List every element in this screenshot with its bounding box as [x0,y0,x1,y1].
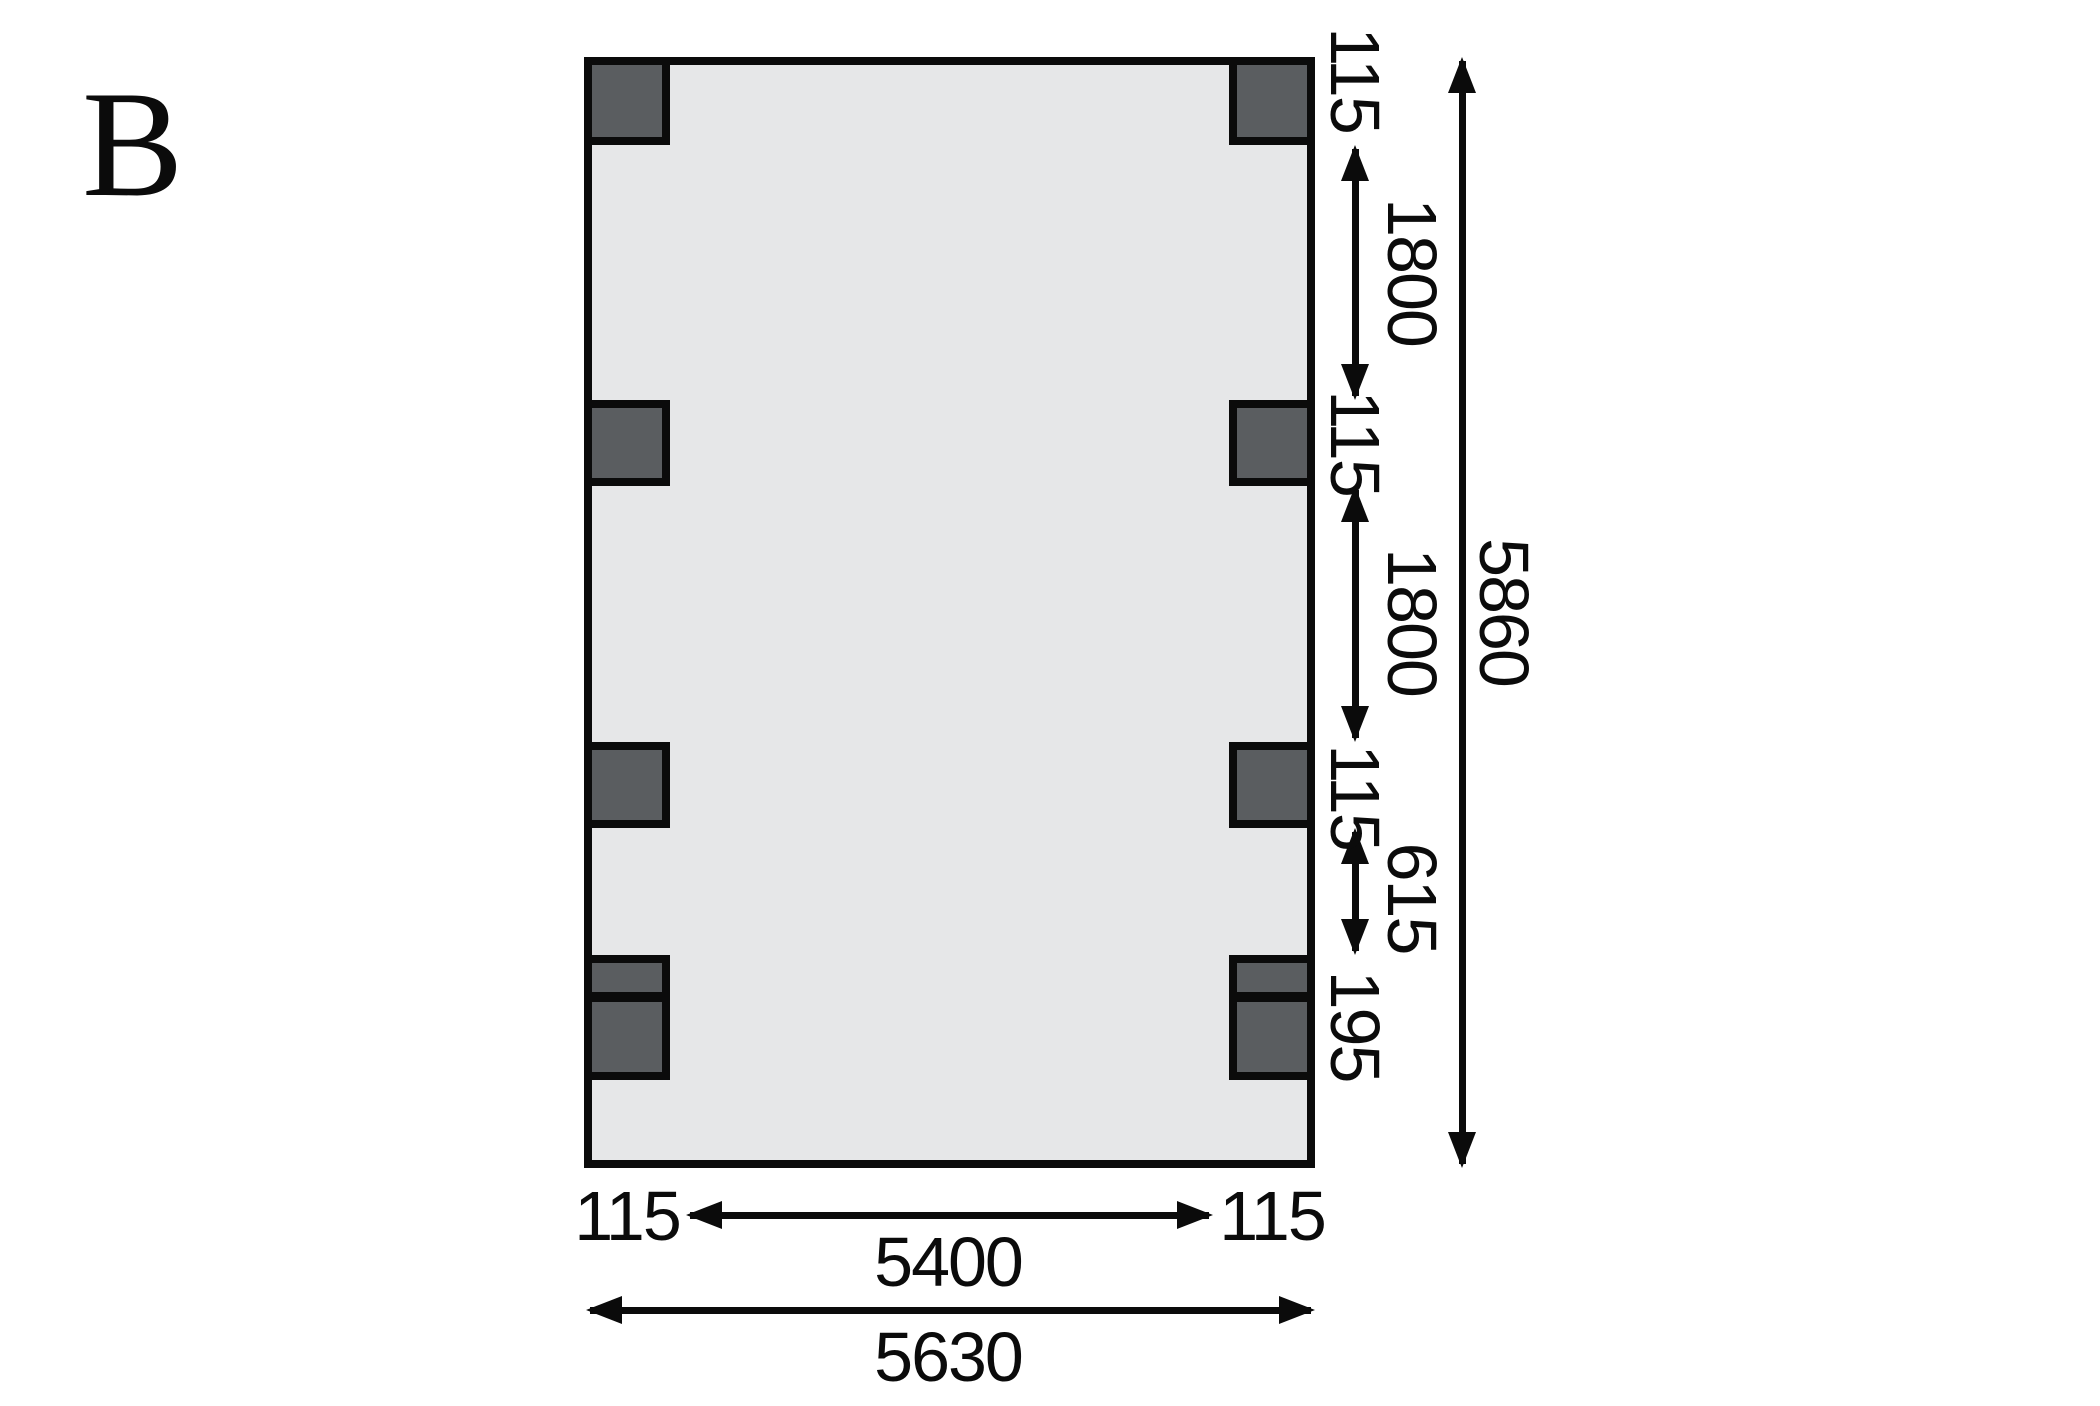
dim-label-post-width-right: 115 [1219,1181,1325,1251]
dim-label-overall-depth: 5860 [1469,538,1539,686]
post-anchor-right [1229,955,1315,1080]
figure-label: B [82,68,183,220]
arrowhead-right-icon [1279,1296,1315,1324]
post-middle-right [1229,400,1315,486]
dim-arrow-spacing-2 [1341,486,1369,742]
arrowhead-down-icon [1341,919,1369,955]
arrowhead-left-icon [686,1201,722,1229]
dim-label-overall-width: 5630 [874,1322,1022,1392]
post-lower-right [1229,742,1315,828]
arrowhead-right-icon [1177,1201,1213,1229]
post-anchor-left [584,955,670,1080]
post-lower-left [584,742,670,828]
arrowhead-down-icon [1341,706,1369,742]
dim-line [1352,149,1359,396]
post-middle-left [584,400,670,486]
dim-label-inner-span: 5400 [874,1227,1022,1297]
dim-label-post-width-lower: 115 [1320,744,1390,850]
post-top-left [584,57,670,145]
plan-outline [584,57,1315,1168]
dim-line [1352,490,1359,738]
technical-drawing: B [0,0,2100,1406]
dim-label-post-width-middle: 115 [1320,390,1390,496]
dim-line [690,1212,1209,1219]
post-anchor-left-band [590,992,664,1002]
dim-label-spacing-1: 1800 [1377,198,1447,346]
dim-label-spacing-2: 1800 [1377,548,1447,696]
dim-label-post-width-top: 115 [1320,27,1390,133]
arrowhead-down-icon [1448,1132,1476,1168]
arrowhead-up-icon [1448,57,1476,93]
post-top-right [1229,57,1315,145]
dim-arrow-spacing-1 [1341,145,1369,400]
dim-label-spacing-3: 615 [1377,843,1447,954]
dim-label-post-width-left: 115 [574,1181,680,1251]
dim-label-anchor-length: 195 [1320,971,1390,1082]
arrowhead-left-icon [586,1296,622,1324]
arrowhead-up-icon [1341,145,1369,181]
dim-line [590,1307,1311,1314]
post-anchor-right-band [1235,992,1309,1002]
